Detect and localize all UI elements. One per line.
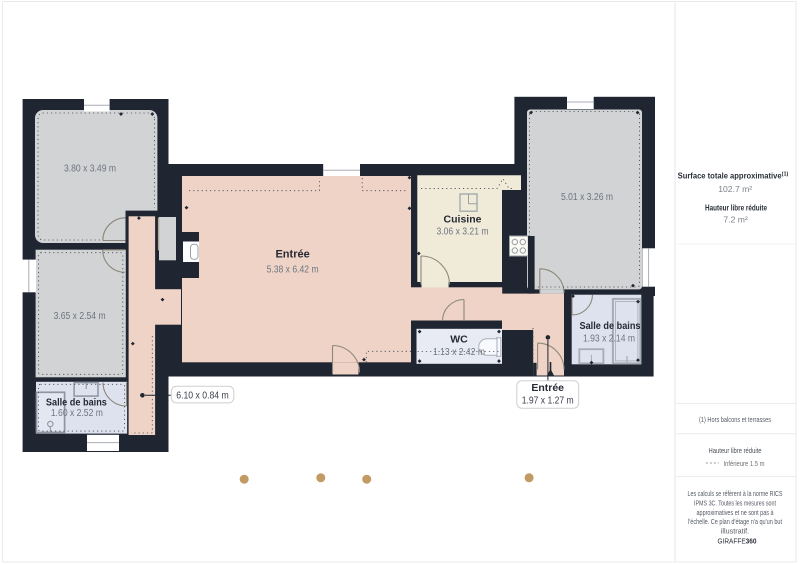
svg-text:Hauteur libre réduite: Hauteur libre réduite [705,202,767,212]
svg-text:approximatives et ne sont pas: approximatives et ne sont pas à [697,508,774,517]
svg-text:Entrée: Entrée [275,249,309,261]
svg-text:Salle de bains: Salle de bains [46,397,107,409]
svg-text:IPMS 3C. Toutes les mesures so: IPMS 3C. Toutes les mesures sont [694,498,776,507]
svg-text:WC: WC [450,334,468,346]
svg-text:5.01 x 3.26 m: 5.01 x 3.26 m [561,192,613,203]
svg-text:Les calculs se réfèrent à la n: Les calculs se réfèrent à la norme RICS [688,489,783,498]
svg-text:7.2 m²: 7.2 m² [723,214,747,224]
svg-text:1.60 x 2.52 m: 1.60 x 2.52 m [51,408,103,419]
svg-text:l'échelle. Ce plan d'étage n'a: l'échelle. Ce plan d'étage n'a qu'un but [688,517,782,526]
svg-text:Hauteur libre réduite: Hauteur libre réduite [709,446,762,455]
svg-text:3.06 x 3.21 m: 3.06 x 3.21 m [437,227,489,238]
svg-text:6.10 x 0.84 m: 6.10 x 0.84 m [176,391,229,402]
svg-text:1.97 x 1.27 m: 1.97 x 1.27 m [522,395,574,406]
svg-text:3.80 x 3.49 m: 3.80 x 3.49 m [64,164,116,175]
svg-text:1.93 x 2.14 m: 1.93 x 2.14 m [583,333,635,344]
svg-text:Salle de bains: Salle de bains [580,320,641,332]
svg-text:GIRAFFE360: GIRAFFE360 [718,537,757,546]
svg-text:5.38 x 6.42 m: 5.38 x 6.42 m [267,265,319,276]
svg-text:Inférieure 1.5 m: Inférieure 1.5 m [724,459,765,468]
svg-text:Surface totale approximative(1: Surface totale approximative(1) [678,170,789,180]
svg-text:102.7 m²: 102.7 m² [718,184,752,194]
svg-text:(1) Hors balcons et terrasses: (1) Hors balcons et terrasses [699,415,771,424]
svg-text:Entrée: Entrée [531,382,564,394]
svg-text:Cuisine: Cuisine [444,214,482,226]
svg-text:1.13 x 2.42 m: 1.13 x 2.42 m [433,347,485,358]
svg-text:3.65 x 2.54 m: 3.65 x 2.54 m [54,311,106,322]
svg-text:illustratif.: illustratif. [721,527,749,536]
